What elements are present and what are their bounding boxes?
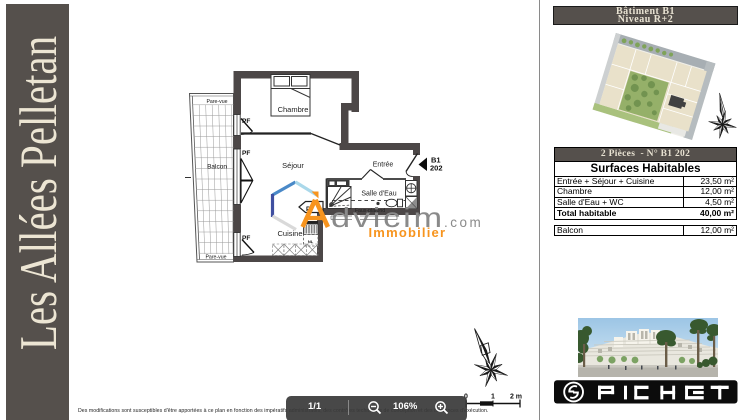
svg-text:NL: NL	[308, 239, 314, 244]
svg-text:Séjour: Séjour	[282, 161, 304, 170]
svg-text:1: 1	[491, 394, 495, 401]
svg-text:Chambre: Chambre	[278, 105, 309, 114]
svg-text:Pare-vue: Pare-vue	[205, 255, 226, 261]
svg-text:Immobilier: Immobilier	[369, 225, 447, 240]
svg-text:PF: PF	[242, 118, 250, 125]
svg-text:202: 202	[430, 164, 443, 173]
svg-text:Entrée: Entrée	[373, 162, 394, 169]
svg-text:PF: PF	[242, 235, 250, 242]
svg-text:PF: PF	[242, 150, 250, 157]
svg-text:Pare-vue: Pare-vue	[206, 99, 227, 105]
svg-text:Salle d'Eau: Salle d'Eau	[361, 191, 396, 198]
svg-text:.com: .com	[444, 215, 483, 230]
svg-text:2 m: 2 m	[510, 394, 522, 401]
svg-text:Balcon: Balcon	[207, 164, 227, 171]
svg-text:Cuisine: Cuisine	[277, 229, 302, 238]
